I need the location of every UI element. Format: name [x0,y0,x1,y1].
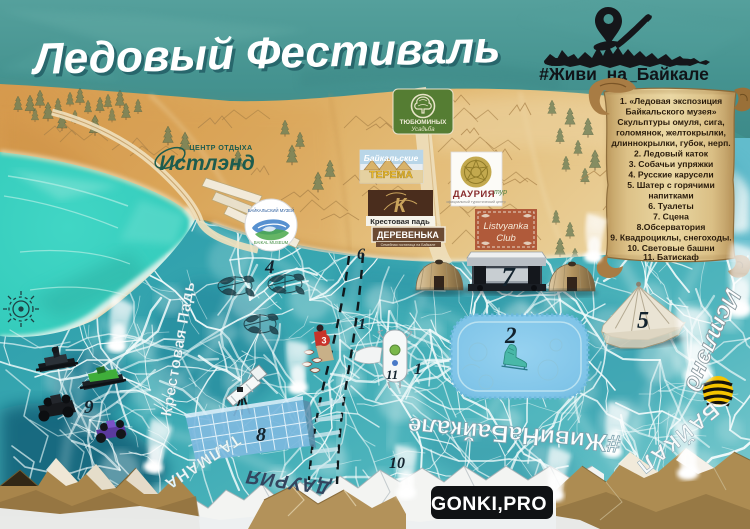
svg-text:БАЙКАЛЬСКИЙ МУЗЕЙ: БАЙКАЛЬСКИЙ МУЗЕЙ [248,208,294,213]
svg-text:ТЮБЮМИНЫХ: ТЮБЮМИНЫХ [400,119,447,126]
svg-text:8: 8 [256,424,266,446]
svg-text:1. «Ледовая экспозиция: 1. «Ледовая экспозиция [620,96,722,106]
svg-text:голомянок, желтокрылки,: голомянок, желтокрылки, [616,128,726,138]
svg-text:9. Квадроциклы, снегоходы.: 9. Квадроциклы, снегоходы. [610,233,731,243]
svg-text:Listvyanka: Listvyanka [484,221,529,232]
svg-text:Байкальские: Байкальские [364,153,419,163]
svg-text:ЦЕНТР ОТДЫХА: ЦЕНТР ОТДЫХА [189,143,252,152]
svg-text:2: 2 [504,323,517,348]
svg-text:ДАУРИЯ: ДАУРИЯ [453,189,495,200]
svg-text:ТЕРЕМА: ТЕРЕМА [369,169,413,181]
svg-text:BAIKAL MUSEUM: BAIKAL MUSEUM [254,240,289,245]
svg-text:официальный туристический цент: официальный туристический центр [446,200,505,204]
svg-text:GONKI,PRO: GONKI,PRO [431,493,547,515]
svg-text:5. Шатер с горячими: 5. Шатер с горячими [627,180,715,190]
svg-text:напитками: напитками [648,191,693,201]
svg-text:Байкальского музея»: Байкальского музея» [625,107,716,117]
svg-text:Истлэнд: Истлэнд [159,152,255,175]
svg-text:тур: тур [494,189,507,196]
svg-text:4. Русские карусели: 4. Русские карусели [628,170,713,180]
svg-text:Club: Club [496,233,516,244]
svg-text:Крестовая падь: Крестовая падь [370,217,430,226]
svg-text:6. Туалеты: 6. Туалеты [648,201,693,211]
svg-text:длиннокрылки, губок, нерп.: длиннокрылки, губок, нерп. [611,138,730,148]
svg-text:1: 1 [414,361,422,378]
svg-text:Скульптуры омуля, сига,: Скульптуры омуля, сига, [617,117,724,127]
svg-text:К: К [394,195,408,217]
svg-text:3. Собачьи упряжки: 3. Собачьи упряжки [629,159,714,169]
svg-text:3: 3 [321,336,326,346]
svg-text:5: 5 [637,308,649,334]
svg-text:2. Ледовый каток: 2. Ледовый каток [634,149,709,159]
svg-text:11: 11 [386,367,398,382]
svg-text:10: 10 [389,455,405,472]
svg-text:7. Сцена: 7. Сцена [653,212,689,222]
svg-text:9: 9 [84,397,94,418]
svg-text:4: 4 [264,257,275,278]
svg-text:6: 6 [357,246,365,263]
svg-text:7: 7 [501,262,516,292]
svg-text:8.Обсерватория: 8.Обсерватория [637,222,706,232]
svg-text:ДЕРЕВЕНЬКА: ДЕРЕВЕНЬКА [377,230,439,240]
svg-text:Усадьба: Усадьба [410,127,435,133]
svg-text:Семейная гостиница на Байкале: Семейная гостиница на Байкале [381,243,436,247]
svg-text:11. Батискаф: 11. Батискаф [643,252,699,262]
svg-text:1: 1 [358,316,366,333]
